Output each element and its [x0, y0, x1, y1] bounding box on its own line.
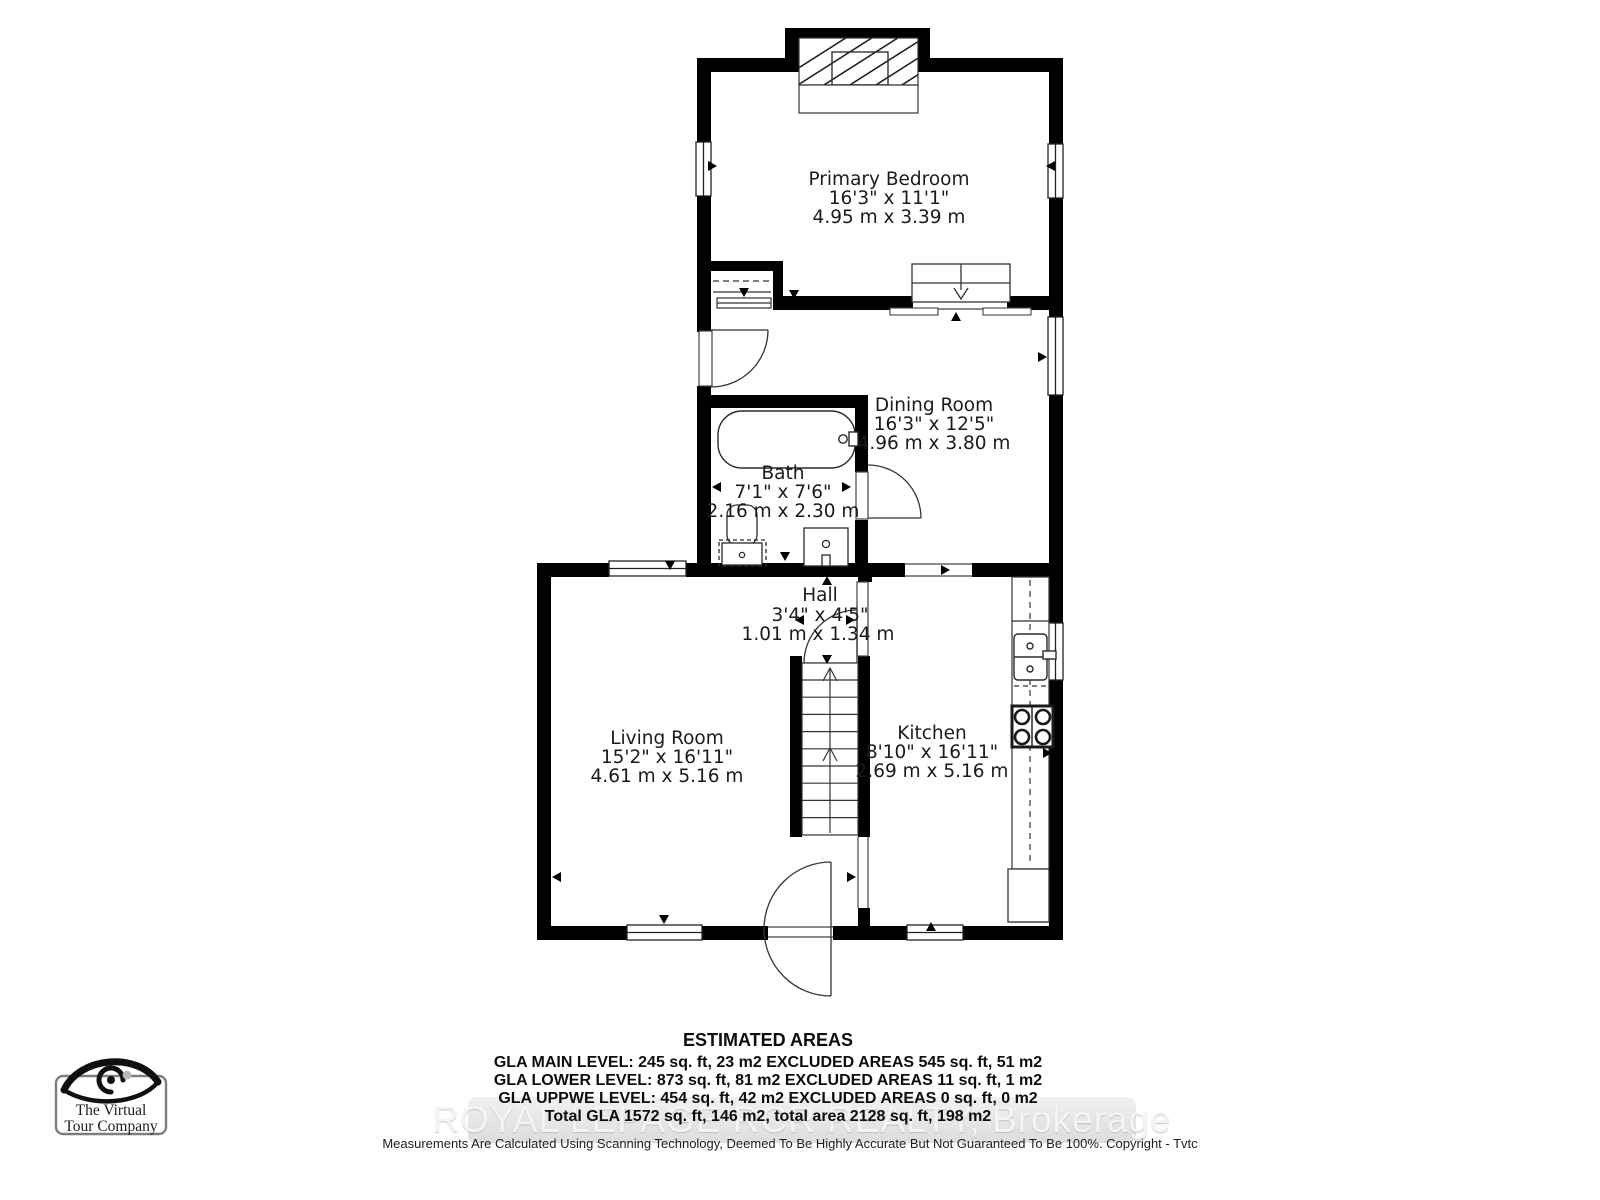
room-kitchen: Kitchen 8'10" x 16'11" 2.69 m x 5.16 m: [856, 723, 1009, 782]
marker-triangle: [708, 161, 717, 171]
room-dims-metric: 2.69 m x 5.16 m: [856, 761, 1009, 782]
front-door: [764, 862, 831, 996]
window: [627, 925, 702, 940]
room-dims-imperial: 8'10" x 16'11": [866, 742, 998, 763]
room-name: Living Room: [610, 728, 724, 749]
floor-plan: Primary Bedroom 16'3" x 11'1" 4.95 m x 3…: [0, 0, 1600, 1200]
room-hall: Hall 3'4" x 4'5" 1.01 m x 1.34 m: [742, 585, 895, 645]
room-name: Primary Bedroom: [808, 169, 969, 190]
marker-triangle: [941, 565, 950, 575]
room-dims-imperial: 16'3" x 12'5": [874, 414, 995, 435]
room-name: Bath: [761, 463, 804, 484]
areas-line-total: Total GLA 1572 sq. ft, 146 m2, total are…: [368, 1108, 1168, 1126]
room-bath: Bath 7'1" x 7'6" 2.16 m x 2.30 m: [707, 463, 860, 522]
room-name: Kitchen: [897, 723, 967, 744]
areas-line-main: GLA MAIN LEVEL: 245 sq. ft, 23 m2 EXCLUD…: [368, 1054, 1168, 1072]
wall: [697, 386, 711, 577]
refrigerator: [1008, 869, 1049, 922]
bedroom-closet: [713, 281, 771, 308]
marker-triangle: [780, 552, 790, 561]
wall: [963, 926, 1063, 940]
room-dims-imperial: 3'4" x 4'5": [772, 605, 869, 626]
window: [609, 561, 686, 576]
wall: [1049, 577, 1063, 623]
wall: [537, 563, 551, 940]
wall: [916, 58, 1063, 72]
areas-line-upper: GLA UPPWE LEVEL: 454 sq. ft, 42 m2 EXCLU…: [368, 1090, 1168, 1108]
logo-virtual-tour-company: The Virtual Tour Company: [48, 1036, 174, 1144]
sink-vanity: [804, 528, 848, 566]
entry-door-dining: [711, 330, 768, 387]
wall: [790, 656, 802, 837]
marker-triangle: [712, 482, 721, 492]
wall: [833, 926, 907, 940]
window: [1048, 317, 1063, 395]
areas-line-lower: GLA LOWER LEVEL: 873 sq. ft, 81 m2 EXCLU…: [368, 1072, 1168, 1090]
estimated-areas: ESTIMATED AREAS GLA MAIN LEVEL: 245 sq. …: [368, 1030, 1168, 1126]
marker-triangle: [659, 915, 669, 924]
wall: [858, 908, 870, 926]
room-dims-imperial: 16'3" x 11'1": [829, 188, 950, 209]
room-name: Dining Room: [875, 395, 993, 416]
room-dims-metric: 4.95 m x 3.39 m: [813, 207, 966, 228]
marker-triangle: [552, 872, 561, 882]
logo-line2: Tour Company: [64, 1118, 157, 1135]
room-primary-bedroom: Primary Bedroom 16'3" x 11'1" 4.95 m x 3…: [808, 169, 969, 228]
wall: [785, 28, 930, 39]
room-dims-metric: 1.01 m x 1.34 m: [742, 624, 895, 645]
marker-triangle: [1038, 352, 1047, 362]
window: [1048, 144, 1063, 198]
room-dining-room: Dining Room 16'3" x 12'5" 4.96 m x 3.80 …: [858, 395, 1011, 454]
bathtub: [718, 411, 858, 468]
bump-out-shelf: [799, 85, 918, 113]
door-in-wall: [699, 331, 712, 386]
wall: [785, 28, 799, 72]
window: [907, 925, 963, 940]
room-living-room: Living Room 15'2" x 16'11" 4.61 m x 5.16…: [591, 728, 744, 787]
room-dims-imperial: 15'2" x 16'11": [601, 747, 733, 768]
areas-title: ESTIMATED AREAS: [368, 1030, 1168, 1051]
stove: [1012, 706, 1053, 747]
logo-graphic: The Virtual Tour Company: [48, 1036, 174, 1144]
logo-line1: The Virtual: [76, 1102, 147, 1119]
bed: [912, 264, 1010, 302]
wall: [1049, 395, 1063, 577]
wall: [773, 261, 783, 310]
marker-triangle: [842, 482, 851, 492]
wall: [858, 563, 872, 582]
wall: [697, 58, 711, 142]
bath-door: [868, 465, 921, 518]
wall: [705, 261, 783, 271]
wall: [972, 563, 1063, 577]
wall: [1049, 198, 1063, 317]
room-dims-metric: 4.96 m x 3.80 m: [858, 433, 1011, 454]
floor-plan-page: Primary Bedroom 16'3" x 11'1" 4.95 m x 3…: [0, 0, 1600, 1200]
stairs: [802, 663, 858, 835]
room-dims-metric: 4.61 m x 5.16 m: [591, 766, 744, 787]
marker-triangle: [847, 872, 856, 882]
disclaimer: Measurements Are Calculated Using Scanni…: [300, 1136, 1280, 1151]
marker-triangle: [951, 312, 961, 321]
room-dims-metric: 2.16 m x 2.30 m: [707, 501, 860, 522]
marker-triangle: [822, 576, 832, 585]
wall: [1049, 58, 1063, 144]
wall: [537, 926, 627, 940]
room-name: Hall: [802, 585, 838, 606]
room-dims-imperial: 7'1" x 7'6": [735, 482, 832, 503]
wall: [697, 395, 868, 408]
wall: [702, 926, 768, 940]
